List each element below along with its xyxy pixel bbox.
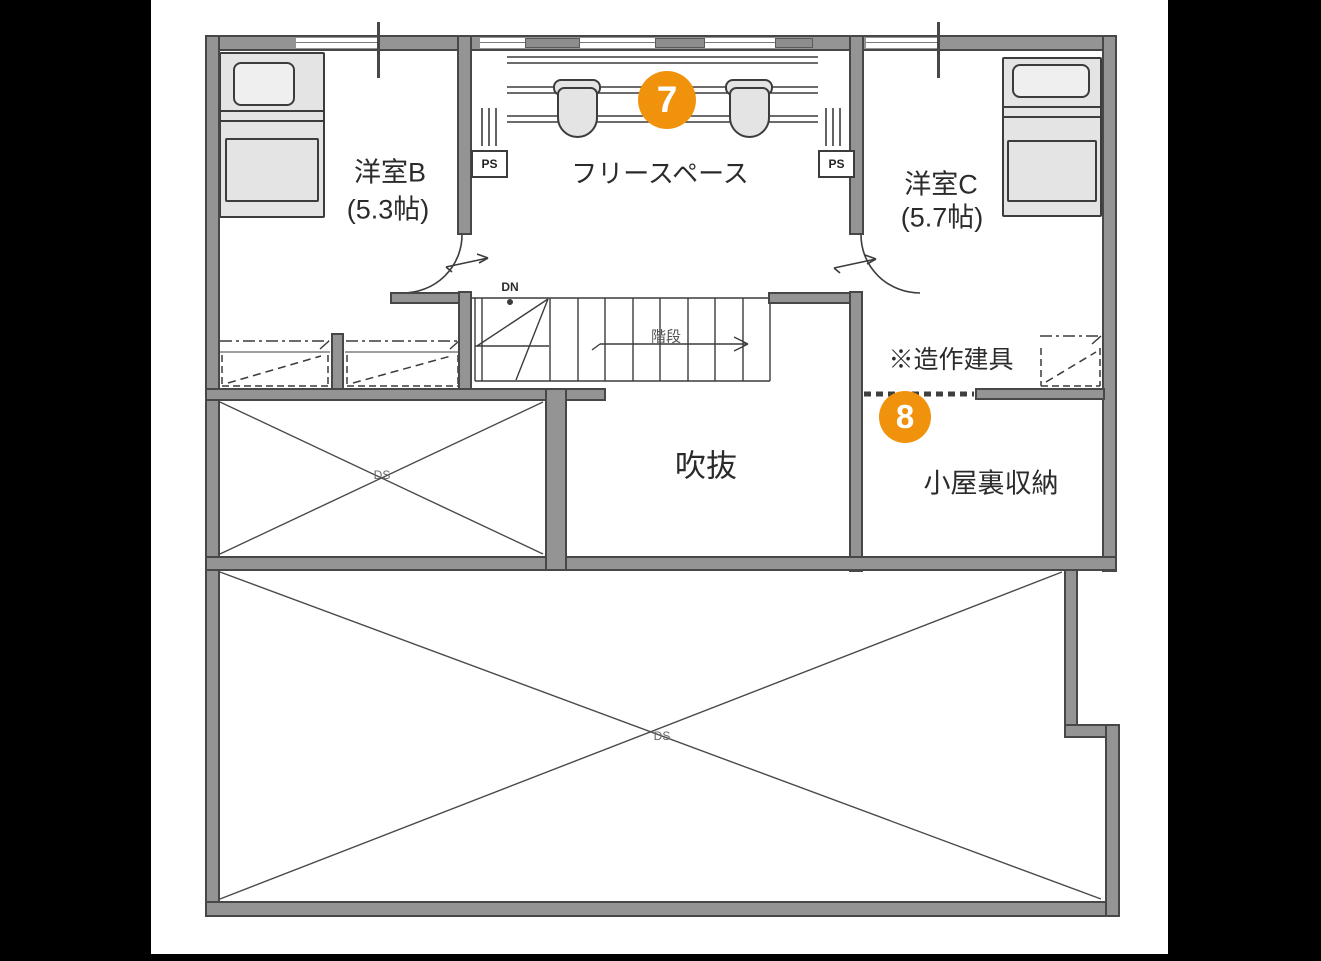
wall-left: [205, 35, 220, 917]
window-room-b: [296, 38, 378, 48]
room-c-size: (5.7帖): [901, 196, 984, 235]
window-hatch-left: [482, 108, 496, 146]
wall-void-left: [545, 388, 567, 571]
bed-b-blanket: [225, 138, 319, 202]
marker-7: 7: [638, 71, 696, 129]
window-mullion: [775, 38, 813, 48]
custom-fittings-label: ※造作建具: [888, 340, 1013, 376]
room-b-label: 洋室B: [354, 151, 426, 190]
wall-bottom: [205, 901, 1120, 917]
down-label: DN: [501, 280, 518, 294]
closet-left-1: [219, 341, 330, 386]
floor-plan: PS PS 洋室B (5.3帖) フリースペース 洋室C (5.7帖) 吹抜 小…: [0, 0, 1321, 961]
letterbox-left: [0, 0, 151, 961]
stairs-label: 階段: [651, 326, 681, 347]
window-hatch-right: [826, 108, 840, 146]
letterbox-bottom: [0, 954, 1321, 961]
bed-b-line: [221, 110, 323, 112]
dn-dot: [507, 299, 513, 305]
wall-attic-left-column: [849, 291, 863, 572]
bed-c-pillow: [1012, 64, 1090, 98]
wall-attic-top: [975, 388, 1105, 400]
door-arc-room-c: [834, 235, 920, 293]
chair-2-seat: [729, 87, 770, 138]
marker-8: 8: [879, 391, 931, 443]
wall-door-c-jamb: [768, 292, 854, 304]
wall-tick-mark: [937, 22, 940, 78]
bed-c-blanket: [1007, 140, 1097, 202]
closet-right: [1040, 336, 1101, 386]
bed-b-line: [221, 120, 323, 122]
wall-right-lower: [1105, 724, 1120, 917]
pipe-space-right: PS: [818, 150, 855, 178]
letterbox-right: [1168, 0, 1321, 961]
window-mullion: [525, 38, 580, 48]
free-space-label: フリースペース: [571, 154, 749, 191]
duct-space-label-mid: DS: [374, 468, 391, 482]
duct-space-label-bottom: DS: [654, 729, 671, 743]
room-b-size: (5.3帖): [347, 188, 430, 227]
closet-left-2: [345, 341, 460, 386]
plan-linework: [0, 0, 1321, 961]
window-mullion: [655, 38, 705, 48]
wall-mid-band: [205, 556, 1117, 571]
void-label: 吹抜: [675, 441, 737, 486]
attic-storage-label: 小屋裏収納: [924, 462, 1059, 501]
wall-divider-room-b: [457, 35, 472, 235]
wall-stairwell-left: [458, 291, 472, 401]
wall-right-step-vertical: [1064, 558, 1078, 738]
wall-closet-stub: [331, 333, 344, 390]
wall-divider-room-c: [849, 35, 864, 235]
pipe-space-left: PS: [471, 150, 508, 178]
staircase: [472, 298, 770, 381]
chair-1-seat: [557, 87, 598, 138]
bed-c-line: [1004, 106, 1100, 108]
wall-right-upper: [1102, 35, 1117, 572]
door-arc-room-b: [403, 235, 488, 293]
bed-c-line: [1004, 116, 1100, 118]
wall-tick-mark: [377, 22, 380, 78]
bed-b-pillow: [233, 62, 295, 106]
window-room-c: [866, 38, 938, 48]
